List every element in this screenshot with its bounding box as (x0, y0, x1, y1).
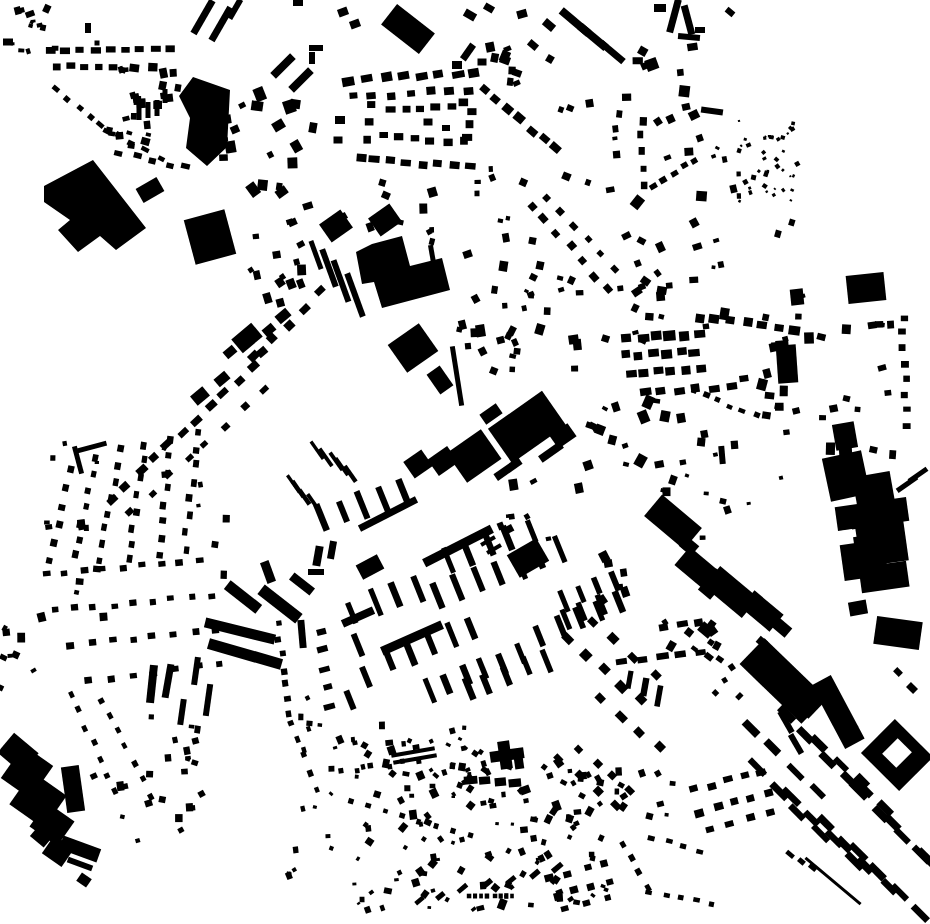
building (96, 557, 102, 564)
building (193, 447, 200, 454)
building (725, 316, 735, 325)
building (764, 392, 774, 400)
building (467, 108, 476, 115)
building (612, 125, 619, 133)
building (89, 604, 96, 611)
building (717, 261, 724, 268)
building (280, 650, 287, 656)
building (776, 344, 799, 383)
building (501, 792, 506, 798)
building (328, 766, 334, 772)
building (150, 599, 157, 606)
building (774, 324, 784, 332)
building (126, 555, 133, 564)
building (677, 894, 683, 900)
building (223, 515, 230, 523)
building (687, 42, 698, 51)
building (466, 120, 474, 128)
building (128, 541, 135, 549)
building (104, 511, 111, 519)
building (381, 71, 393, 82)
building (867, 321, 877, 329)
building (355, 775, 359, 779)
building (165, 754, 172, 762)
building (80, 567, 88, 574)
building (677, 69, 684, 76)
building (138, 561, 146, 567)
building (128, 524, 135, 533)
building (404, 785, 410, 791)
building (325, 834, 330, 838)
building (511, 822, 515, 825)
building (901, 361, 909, 368)
building (99, 566, 106, 572)
building (52, 607, 59, 613)
building (494, 777, 506, 786)
building (282, 679, 289, 686)
building (804, 332, 814, 344)
building (616, 110, 623, 118)
building (129, 64, 139, 73)
building (114, 462, 122, 470)
building (394, 878, 399, 882)
building (194, 725, 201, 733)
building (901, 316, 908, 322)
building (257, 179, 268, 191)
building (689, 276, 698, 283)
building (95, 41, 100, 46)
building (465, 343, 472, 350)
building (409, 794, 414, 798)
building (386, 106, 396, 112)
building (211, 541, 219, 548)
building (146, 102, 151, 118)
building (688, 349, 700, 357)
building (462, 726, 466, 730)
building (681, 366, 691, 375)
building (297, 264, 306, 275)
building (111, 603, 118, 609)
building (84, 525, 89, 531)
building (419, 203, 427, 213)
building (175, 559, 183, 566)
building (462, 134, 472, 141)
building (442, 125, 450, 131)
building (182, 528, 188, 536)
building (566, 814, 571, 820)
building (626, 370, 637, 378)
building (189, 724, 195, 728)
building (639, 147, 645, 155)
building (120, 565, 128, 572)
building (418, 161, 427, 169)
building-footprint-map (0, 0, 930, 924)
building (272, 251, 281, 259)
building (163, 89, 168, 103)
building (901, 392, 908, 398)
building (774, 403, 781, 410)
building (508, 514, 515, 520)
building (479, 776, 491, 785)
building (184, 546, 190, 554)
building (654, 4, 666, 12)
building (137, 104, 142, 120)
building (510, 894, 514, 899)
building (450, 763, 455, 769)
building (196, 557, 204, 563)
building (603, 559, 613, 568)
building (463, 87, 473, 95)
building (485, 894, 490, 899)
building (731, 441, 739, 450)
building (617, 285, 624, 291)
building (498, 261, 508, 272)
building (427, 906, 431, 909)
building (665, 367, 675, 376)
building (576, 290, 584, 296)
building (696, 191, 707, 202)
building (700, 430, 708, 439)
building (366, 92, 376, 100)
building (726, 382, 737, 390)
building (444, 139, 453, 147)
building (109, 64, 118, 70)
building (192, 628, 199, 635)
building (165, 483, 171, 491)
building (656, 286, 667, 295)
building (903, 423, 911, 429)
building (677, 347, 687, 355)
building (826, 442, 835, 455)
building (360, 897, 365, 903)
building (148, 63, 158, 72)
building (196, 503, 201, 507)
building (53, 64, 61, 71)
building (633, 57, 643, 64)
building (530, 835, 537, 842)
building (181, 768, 188, 774)
building (165, 452, 172, 459)
building (502, 303, 508, 309)
building (149, 714, 154, 719)
building (109, 637, 117, 643)
building (679, 331, 690, 341)
building (451, 796, 455, 798)
building (174, 84, 181, 92)
building (363, 136, 371, 144)
building (309, 45, 323, 51)
building (308, 569, 324, 575)
building (903, 407, 911, 412)
building (43, 571, 51, 577)
building (747, 502, 751, 505)
building (637, 131, 643, 139)
building (76, 521, 83, 529)
building (795, 314, 802, 320)
building (141, 455, 147, 463)
building (189, 594, 196, 601)
building (846, 272, 887, 304)
building (842, 324, 851, 334)
building (130, 636, 137, 643)
building (704, 491, 709, 495)
building (674, 387, 685, 395)
building (106, 46, 116, 52)
building (335, 116, 345, 124)
building (444, 87, 455, 96)
building (568, 769, 573, 773)
building (585, 99, 594, 108)
building (355, 768, 360, 774)
building (394, 133, 403, 140)
building (18, 48, 24, 52)
building (508, 778, 521, 787)
building (387, 92, 396, 100)
building (3, 39, 13, 46)
building (193, 460, 200, 468)
building (66, 642, 75, 650)
building (638, 334, 650, 343)
building (158, 535, 165, 543)
building (887, 321, 894, 329)
building (700, 535, 706, 540)
building (365, 825, 371, 832)
building (478, 59, 487, 66)
building (645, 313, 654, 321)
city-figure-ground-map (0, 0, 930, 924)
building (676, 413, 686, 424)
building (135, 46, 144, 52)
building (349, 92, 357, 99)
building (208, 593, 215, 599)
building (499, 894, 503, 899)
building (898, 329, 906, 335)
building (544, 307, 551, 315)
building (697, 438, 706, 447)
building (298, 714, 303, 721)
building (878, 322, 885, 327)
building (281, 668, 288, 675)
building (379, 132, 388, 138)
building (684, 148, 693, 156)
building (169, 69, 176, 77)
building (495, 822, 499, 825)
building (695, 314, 705, 324)
building (409, 810, 418, 820)
building (702, 323, 709, 329)
building (473, 894, 477, 899)
building (151, 46, 161, 52)
building (523, 798, 529, 803)
building (356, 153, 367, 162)
building (653, 398, 661, 403)
building (679, 459, 686, 465)
building (474, 191, 479, 197)
building (791, 121, 795, 125)
building (140, 442, 147, 450)
building (838, 431, 853, 458)
building (467, 894, 472, 899)
building (589, 855, 595, 861)
building (147, 632, 155, 639)
building (452, 61, 462, 69)
building (50, 455, 55, 460)
building (884, 390, 891, 396)
building (156, 552, 163, 559)
building (573, 809, 581, 815)
building (146, 771, 153, 778)
building (133, 491, 139, 499)
building (783, 429, 790, 435)
building (158, 561, 166, 567)
building (95, 64, 102, 70)
building (615, 788, 620, 794)
building (507, 77, 514, 86)
building (470, 328, 477, 337)
building (317, 723, 322, 727)
building (663, 330, 676, 341)
building (695, 27, 705, 33)
building (433, 159, 442, 167)
building (449, 161, 460, 169)
building (99, 613, 107, 622)
building (696, 364, 706, 372)
building (762, 313, 770, 321)
building (167, 595, 174, 601)
building (536, 858, 540, 861)
building (175, 814, 183, 822)
building (528, 237, 536, 245)
building (287, 157, 297, 168)
building (819, 415, 826, 420)
building (80, 64, 88, 70)
building (76, 578, 84, 585)
building (130, 673, 138, 679)
building (133, 508, 141, 516)
building (276, 620, 282, 626)
building (899, 344, 906, 351)
building (640, 117, 648, 126)
building (191, 479, 198, 487)
building (31, 19, 36, 22)
building (46, 47, 56, 54)
building (708, 314, 720, 324)
building (117, 444, 125, 452)
building (474, 180, 480, 184)
building (91, 47, 101, 53)
building (385, 739, 393, 746)
building (352, 882, 356, 885)
building (251, 100, 264, 111)
building (44, 520, 50, 524)
building (66, 62, 75, 68)
building (468, 68, 480, 79)
building (508, 478, 518, 491)
building (429, 227, 434, 233)
building (195, 429, 201, 436)
building (485, 42, 495, 53)
building (489, 166, 494, 172)
building (71, 604, 79, 611)
building (889, 450, 896, 459)
building (854, 406, 860, 412)
building (573, 339, 582, 351)
building (368, 155, 380, 163)
building (751, 175, 757, 181)
building (513, 348, 520, 355)
building (401, 741, 406, 747)
building (903, 376, 910, 382)
building (62, 441, 67, 446)
building (790, 288, 805, 305)
building (669, 781, 675, 786)
building (479, 894, 483, 899)
building (7, 654, 12, 658)
building (615, 767, 622, 776)
building (426, 86, 436, 95)
building (293, 0, 303, 6)
building (448, 103, 457, 109)
building (762, 411, 771, 419)
building (89, 639, 97, 646)
building (45, 524, 53, 530)
building (638, 369, 649, 378)
building (743, 317, 753, 327)
building (766, 170, 769, 173)
building (191, 805, 196, 811)
building (661, 349, 673, 359)
building (416, 106, 424, 112)
building (155, 100, 160, 116)
building (220, 571, 227, 579)
building (653, 366, 663, 374)
building (284, 696, 292, 702)
building (17, 633, 25, 643)
building (664, 813, 668, 817)
building (143, 120, 150, 129)
building (756, 321, 767, 330)
building (464, 776, 478, 785)
building (737, 193, 741, 199)
building (306, 720, 313, 726)
building (528, 902, 534, 907)
building (403, 106, 411, 113)
building (61, 570, 68, 576)
building (285, 710, 291, 717)
building (651, 331, 662, 341)
building (491, 286, 498, 295)
building (788, 325, 801, 336)
building (169, 631, 177, 637)
building (121, 47, 129, 53)
building (185, 756, 191, 760)
building (622, 94, 631, 101)
building (411, 135, 420, 141)
building (252, 233, 259, 239)
building (216, 661, 223, 667)
building (780, 386, 788, 397)
building (424, 119, 433, 126)
building (166, 45, 175, 52)
building (379, 722, 385, 730)
building (571, 366, 578, 372)
building (678, 85, 690, 98)
building (655, 387, 666, 396)
building (620, 568, 628, 577)
building (641, 182, 648, 190)
building (367, 101, 375, 108)
building (613, 151, 621, 159)
